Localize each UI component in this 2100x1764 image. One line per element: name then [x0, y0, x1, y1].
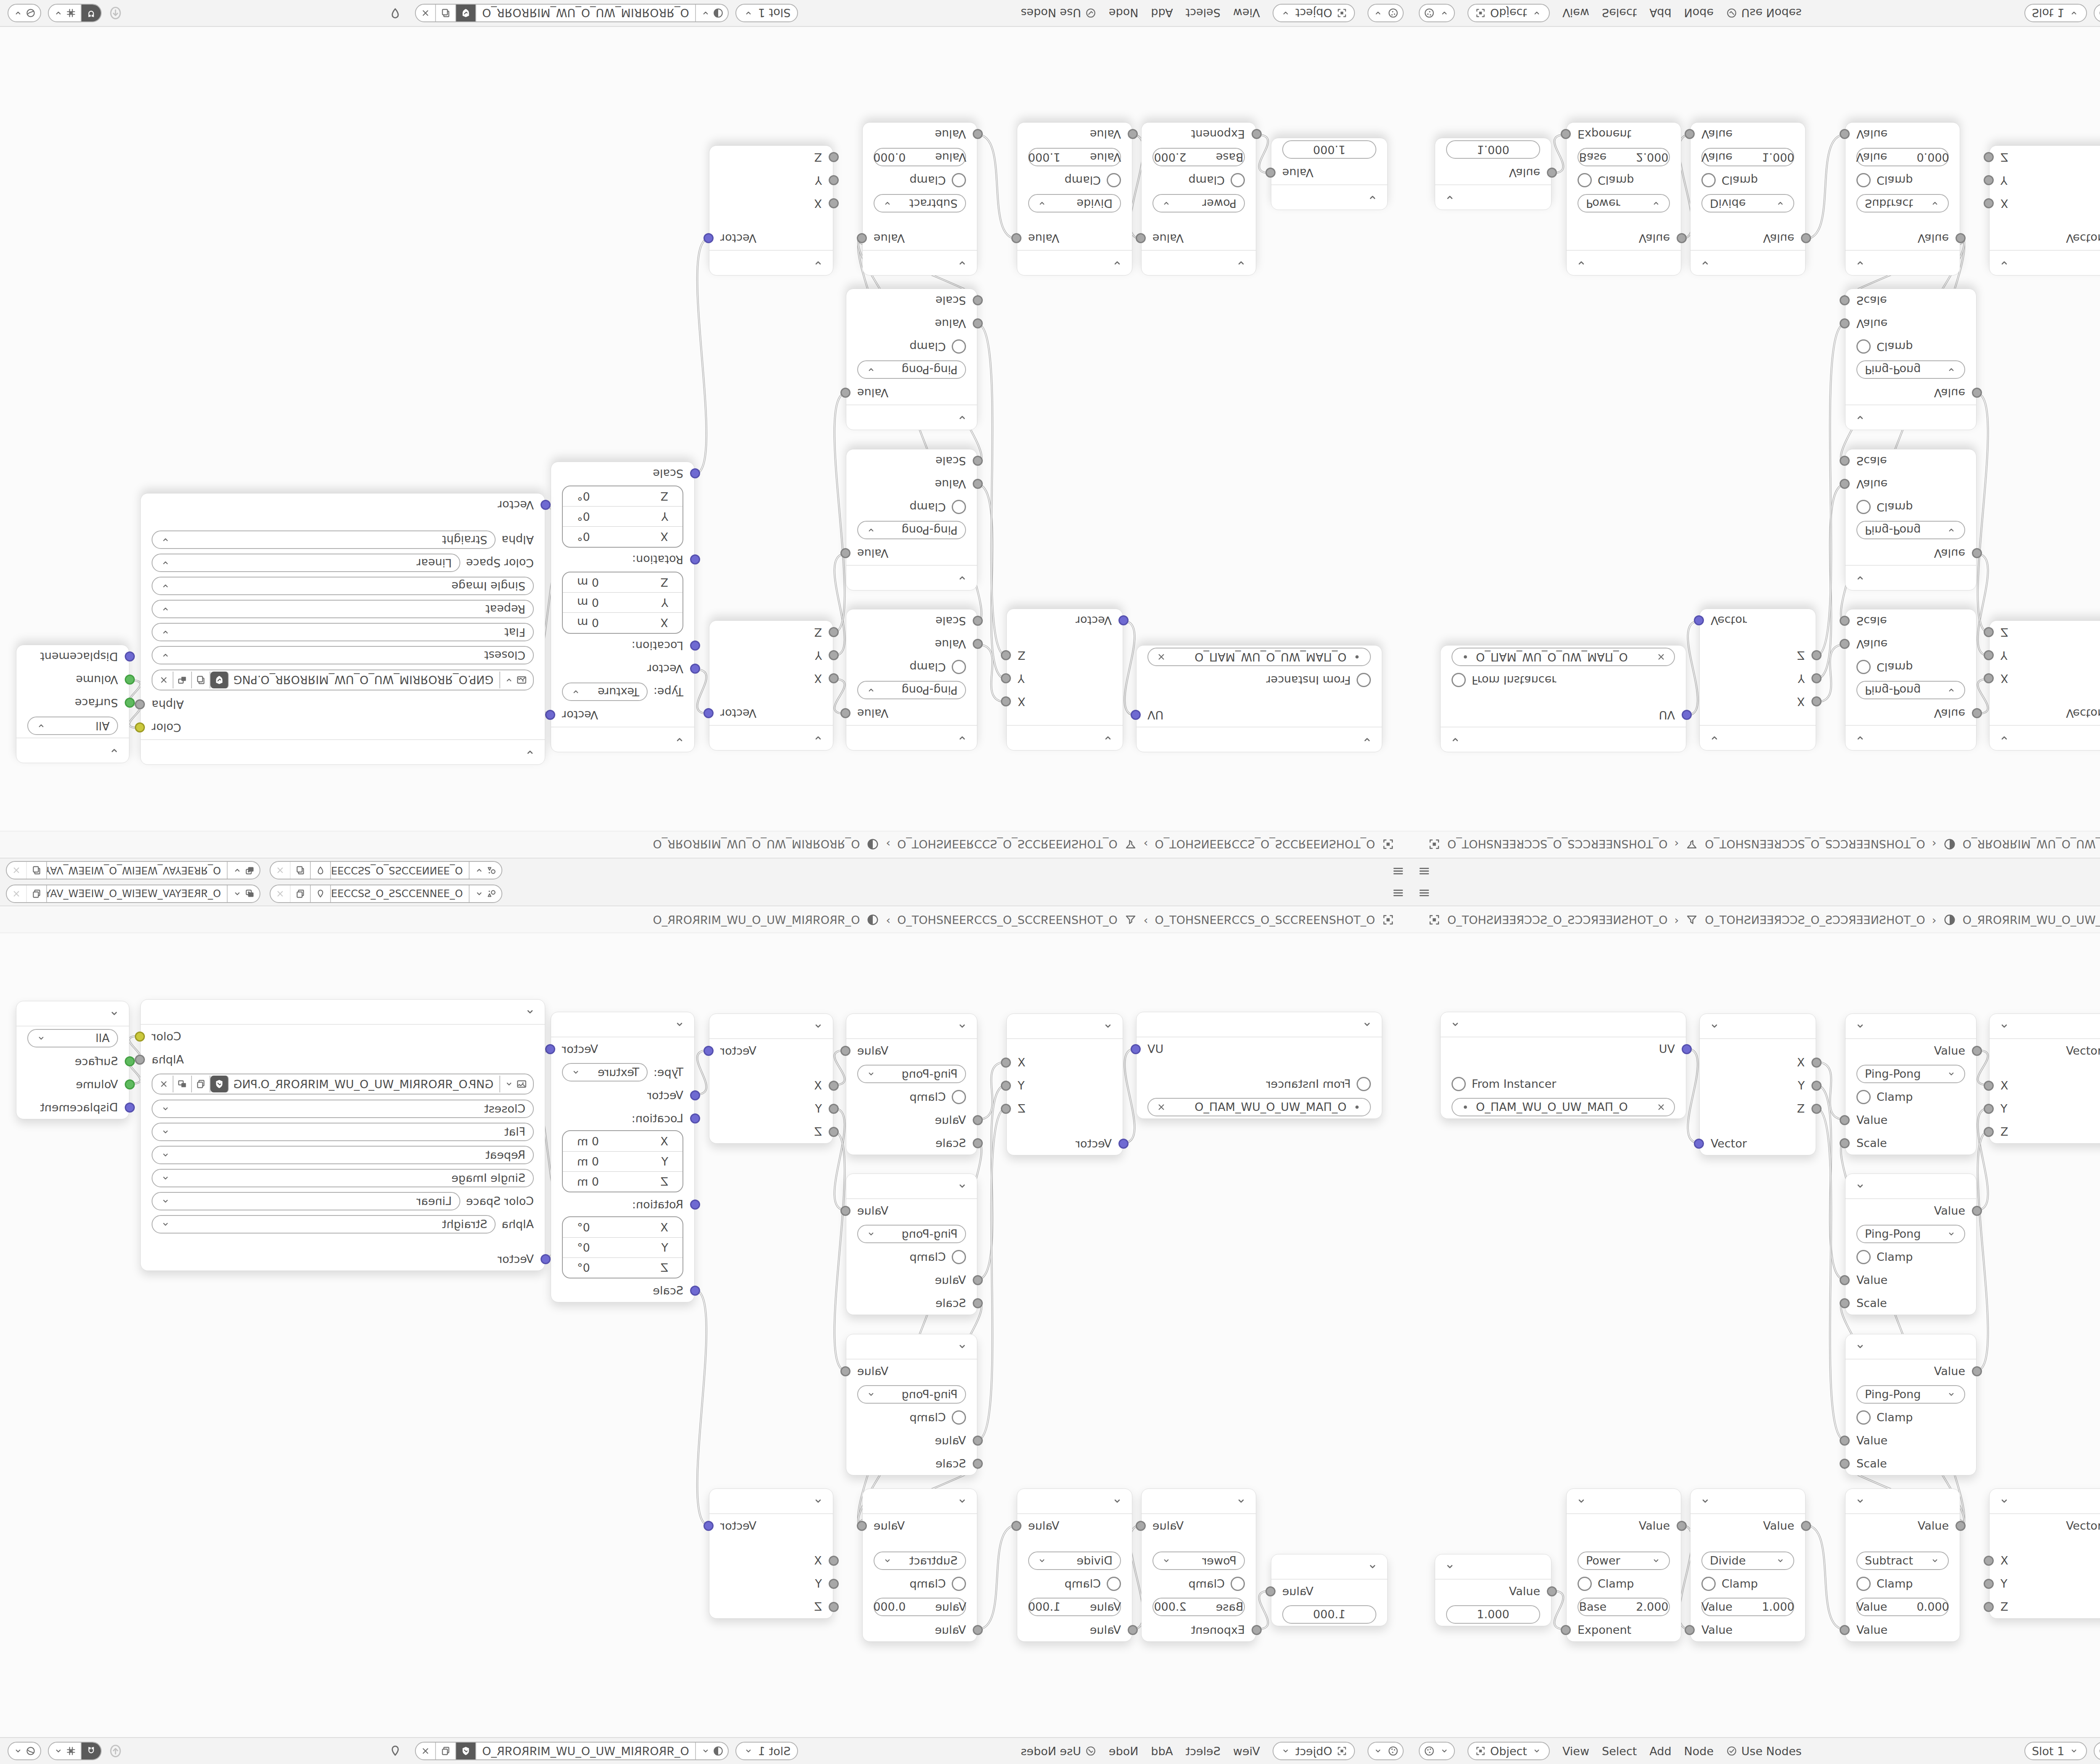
number-field[interactable]: Base2.000 — [1152, 1598, 1245, 1616]
view-layer-browse-button[interactable] — [228, 862, 260, 879]
node-material-output[interactable]: AllSurfaceVolumeDisplacement — [16, 1001, 129, 1119]
socket-value[interactable] — [1811, 1104, 1822, 1114]
copy-scene-button[interactable] — [291, 885, 311, 902]
editor-type-button[interactable] — [1368, 4, 1404, 22]
number-field[interactable]: Base2.000 — [1152, 148, 1245, 167]
number-field[interactable]: Value1.000 — [1028, 148, 1121, 167]
scene-browse-button[interactable] — [470, 885, 501, 902]
dropdown[interactable]: Power — [1152, 194, 1245, 213]
socket-value[interactable] — [1685, 1625, 1695, 1635]
dropdown[interactable]: Power — [1152, 1551, 1245, 1570]
node-collapse-header[interactable] — [846, 1014, 977, 1039]
socket-value[interactable] — [1011, 234, 1021, 244]
socket-value[interactable] — [1840, 639, 1850, 649]
number-field[interactable]: Value1.000 — [1028, 1598, 1121, 1616]
node-math-power[interactable]: ValuePowerClampBase2.000Exponent — [1566, 122, 1681, 276]
node-value[interactable]: Value1.000 — [1271, 138, 1388, 210]
socket-value[interactable] — [1984, 1602, 1994, 1612]
dropdown[interactable]: Linear — [152, 1192, 460, 1210]
socket-vector[interactable] — [1694, 616, 1704, 626]
slot-dropdown[interactable]: Slot 1 — [735, 1742, 798, 1760]
vector-component-field[interactable]: X0 m — [563, 613, 682, 633]
node-value[interactable]: Value1.000 — [1435, 138, 1551, 210]
snap-mode-dropdown[interactable] — [49, 5, 81, 21]
socket-value[interactable] — [829, 651, 839, 661]
node-image-texture[interactable]: ColorAlphaGИP.O_ЯROЯRIM_WU_O_UW_MIЯROЯR_… — [140, 999, 545, 1271]
new-copy-button[interactable] — [436, 1743, 456, 1759]
use-nodes-toggle[interactable]: Use Nodes — [1726, 1745, 1802, 1758]
number-field[interactable]: Value1.000 — [1701, 1598, 1794, 1616]
dropdown[interactable]: Linear — [152, 554, 460, 572]
socket-vector[interactable] — [1682, 710, 1692, 720]
socket-value[interactable] — [1265, 168, 1276, 178]
socket-value[interactable] — [840, 1046, 850, 1056]
checkbox[interactable] — [952, 340, 966, 354]
breadcrumb-item-image[interactable]: O_ЯROЯRIM_WU_O_UW_MIЯROЯR_O — [1963, 838, 2100, 851]
node-collapse-header[interactable] — [709, 725, 833, 750]
node-mapping[interactable]: VectorType:TextureVectorLocation:X0 mY0 … — [551, 1012, 695, 1302]
unlink-scene-button[interactable] — [270, 885, 291, 902]
socket-vector[interactable] — [1118, 616, 1129, 626]
dropdown[interactable]: Straight — [152, 1215, 496, 1234]
socket-value[interactable] — [857, 234, 867, 244]
socket-value[interactable] — [973, 639, 983, 649]
dropdown[interactable]: Single Image — [152, 577, 534, 596]
socket-vector[interactable] — [690, 555, 700, 565]
socket-value[interactable] — [1984, 1556, 1994, 1566]
node-collapse-header[interactable] — [709, 250, 833, 275]
node-separate-xyz[interactable]: XYZVector — [1699, 1013, 1816, 1155]
node-collapse-header[interactable] — [16, 1001, 129, 1026]
image-datablock-field[interactable]: GИP.O_ЯROЯRIM_WU_O_UW_MIЯROЯR_O.PNG — [152, 669, 534, 690]
snap-mode-dropdown[interactable] — [49, 1743, 81, 1759]
checkbox[interactable] — [1107, 173, 1121, 188]
vector-component-field[interactable]: Y0 m — [563, 1151, 682, 1171]
menu-node[interactable]: Node — [1109, 7, 1138, 20]
dropdown[interactable]: Ping-Pong — [1856, 681, 1965, 700]
shader-type-dropdown[interactable]: Object — [1467, 1742, 1550, 1760]
node-math-power[interactable]: ValuePowerClampBase2.000Exponent — [1566, 1488, 1681, 1642]
socket-value[interactable] — [1001, 697, 1011, 707]
vector-value-table[interactable]: X0°Y0°Z0° — [562, 486, 683, 548]
node-collapse-header[interactable] — [551, 727, 694, 752]
collapsed-menus-button[interactable] — [1391, 886, 1405, 902]
socket-value[interactable] — [1677, 1521, 1687, 1531]
copy-view-layer-button[interactable] — [27, 862, 47, 879]
overlap-arrow-icon[interactable] — [108, 6, 123, 20]
socket-value[interactable] — [840, 388, 850, 398]
socket-value[interactable] — [1001, 1081, 1011, 1091]
node-math-ping-pong-1[interactable]: ValuePing-PongClampValueScale — [1845, 1013, 1977, 1155]
collapsed-menus-button[interactable] — [1417, 886, 1431, 902]
node-collapse-header[interactable] — [1845, 1014, 1976, 1039]
checkbox[interactable] — [1856, 1410, 1871, 1425]
socket-value[interactable] — [829, 199, 839, 209]
node-collapse-header[interactable] — [1845, 565, 1976, 590]
dropdown[interactable]: Divide — [1028, 1551, 1121, 1570]
socket-value[interactable] — [1811, 1081, 1822, 1091]
socket-value[interactable] — [1972, 1046, 1982, 1056]
dropdown[interactable]: Ping-Pong — [857, 1065, 966, 1083]
menu-view[interactable]: View — [1233, 7, 1260, 20]
socket-value[interactable] — [973, 1138, 983, 1148]
dropdown[interactable]: Power — [1578, 194, 1670, 213]
checkbox[interactable] — [1452, 1077, 1466, 1091]
socket-value[interactable] — [1547, 1586, 1557, 1596]
node-math-power[interactable]: ValuePowerClampBase2.000Exponent — [1141, 122, 1256, 276]
node-collapse-header[interactable] — [1845, 1489, 1960, 1514]
node-math-ping-pong-1[interactable]: ValuePing-PongClampValueScale — [846, 609, 977, 751]
number-field[interactable]: 1.000 — [1282, 1605, 1376, 1624]
menu-view[interactable]: View — [1562, 1745, 1589, 1758]
socket-value[interactable] — [973, 1625, 983, 1635]
vector-value-table[interactable]: X0 mY0 mZ0 m — [562, 1130, 683, 1192]
socket-value[interactable] — [973, 1298, 983, 1308]
dropdown[interactable]: Subtract — [874, 1551, 966, 1570]
socket-value[interactable] — [1136, 234, 1146, 244]
dropdown[interactable]: Ping-Pong — [1856, 1065, 1965, 1083]
socket-value[interactable] — [829, 1556, 839, 1566]
vector-value-table[interactable]: X0 mY0 mZ0 m — [562, 572, 683, 634]
node-collapse-header[interactable] — [1845, 404, 1976, 430]
breadcrumb-item-scene[interactable]: O_TOHƧИƎƎЯƆƆƧ_O_ƧƆƆЯƎƎИƧHOT_O — [1155, 838, 1375, 851]
dropdown[interactable]: Ping-Pong — [857, 1385, 966, 1404]
socket-value[interactable] — [1840, 1115, 1850, 1125]
pin-icon[interactable] — [388, 6, 402, 20]
socket-shader[interactable] — [125, 698, 135, 708]
checkbox[interactable] — [1856, 1577, 1871, 1591]
browse-image-button[interactable] — [2095, 1743, 2100, 1759]
socket-value[interactable] — [1972, 1206, 1982, 1216]
socket-value[interactable] — [1840, 456, 1850, 466]
node-collapse-header[interactable] — [1137, 727, 1382, 752]
socket-value[interactable] — [1561, 1625, 1571, 1635]
socket-vector[interactable] — [690, 641, 700, 651]
node-collapse-header[interactable] — [1990, 1014, 2100, 1039]
view-layer-name-field[interactable]: O_ЯRƎEYAV_WƎEIW_O_WIƎEW_VAYƎEЯR_O — [47, 885, 228, 902]
breadcrumb-item-image[interactable]: O_ЯROЯRIM_WU_O_UW_MIЯROЯR_O — [653, 913, 860, 927]
menu-node[interactable]: Node — [1684, 1745, 1714, 1758]
dropdown[interactable]: Ping-Pong — [1856, 361, 1965, 379]
id-select-field[interactable]: O_ПAM_WU_O_UW_MAП_O — [1452, 648, 1675, 667]
node-collapse-header[interactable] — [1271, 184, 1387, 210]
socket-value[interactable] — [1677, 234, 1687, 244]
node-collapse-header[interactable] — [551, 1012, 694, 1037]
node-material-output[interactable]: AllSurfaceVolumeDisplacement — [16, 645, 129, 763]
socket-value[interactable] — [1984, 1104, 1994, 1114]
menu-node[interactable]: Node — [1109, 1745, 1138, 1758]
node-collapse-header[interactable] — [141, 1000, 545, 1025]
shader-type-dropdown[interactable]: Object — [1273, 4, 1355, 22]
socket-vector[interactable] — [1694, 1139, 1704, 1149]
browse-image-button[interactable] — [2095, 5, 2100, 21]
number-field[interactable]: Value0.000 — [1856, 148, 1949, 167]
socket-value[interactable] — [829, 1579, 839, 1589]
node-collapse-header[interactable] — [1441, 1012, 1686, 1037]
node-editor-canvas[interactable]: UVFrom InstancerO_ПAM_WU_O_UW_MAП_OXYZVe… — [1411, 0, 2100, 882]
breadcrumb-item-view-layer[interactable]: O_TOHƧИƎƎЯƆƆƧ_O_ƧƆƆЯƎƎИƧHOT_O — [1705, 913, 1925, 927]
socket-value[interactable] — [840, 1366, 850, 1376]
menu-select[interactable]: Select — [1186, 1745, 1221, 1758]
socket-vector[interactable] — [1131, 1044, 1141, 1054]
node-editor-canvas[interactable]: UVFrom InstancerO_ПAM_WU_O_UW_MAП_OXYZVe… — [0, 0, 1411, 882]
socket-value[interactable] — [1128, 129, 1138, 139]
number-field[interactable]: Value0.000 — [1856, 1598, 1949, 1616]
socket-value[interactable] — [1840, 1275, 1850, 1285]
checkbox[interactable] — [952, 1410, 966, 1425]
socket-value[interactable] — [1956, 1521, 1966, 1531]
node-collapse-header[interactable] — [1990, 725, 2100, 750]
checkbox[interactable] — [1701, 173, 1716, 188]
scene-name-field[interactable]: O_ƎƎИИƎƆƆƧS_O_SƧƆƆƎƎИ… — [331, 862, 470, 879]
node-collapse-header[interactable] — [16, 738, 129, 763]
node-collapse-header[interactable] — [1990, 1489, 2100, 1514]
socket-value[interactable] — [1840, 129, 1850, 139]
node-combine-xyz-2[interactable]: VectorXYZ — [709, 1488, 833, 1619]
socket-value[interactable] — [1561, 129, 1571, 139]
node-collapse-header[interactable] — [846, 725, 977, 750]
node-collapse-header[interactable] — [1007, 1014, 1123, 1039]
socket-value[interactable] — [829, 1602, 839, 1612]
socket-vector[interactable] — [703, 1521, 714, 1531]
node-combine-xyz-1[interactable]: VectorXYZ — [1989, 620, 2100, 751]
checkbox[interactable] — [952, 1250, 966, 1264]
socket-value[interactable] — [1956, 234, 1966, 244]
socket-shader[interactable] — [125, 1079, 135, 1089]
socket-value[interactable] — [1801, 234, 1811, 244]
node-collapse-header[interactable] — [1567, 250, 1681, 275]
socket-value[interactable] — [1840, 1298, 1850, 1308]
socket-value[interactable] — [1001, 1058, 1011, 1068]
socket-value[interactable] — [1972, 709, 1982, 719]
editor-type-button[interactable] — [1419, 1742, 1455, 1760]
checkbox[interactable] — [1578, 1577, 1592, 1591]
overlap-arrow-icon[interactable] — [108, 1744, 123, 1758]
socket-shader[interactable] — [125, 675, 135, 685]
node-collapse-header[interactable] — [1137, 1012, 1382, 1037]
socket-value[interactable] — [1811, 697, 1822, 707]
node-collapse-header[interactable] — [1845, 725, 1976, 750]
socket-vector[interactable] — [125, 1102, 135, 1113]
checkbox[interactable] — [1856, 500, 1871, 514]
datablock-name-field[interactable]: O_ЯROЯRIM_WU_O_UW_MIЯROЯR_O — [476, 1743, 696, 1759]
menu-add[interactable]: Add — [1151, 7, 1173, 20]
node-math-subtract[interactable]: ValueSubtractClampValue0.000Value — [862, 122, 977, 276]
socket-value[interactable] — [973, 616, 983, 626]
socket-value[interactable] — [829, 627, 839, 638]
unlink-datablock-button[interactable] — [416, 1743, 436, 1759]
breadcrumb-item-image[interactable]: O_ЯROЯRIM_WU_O_UW_MIЯROЯR_O — [653, 838, 860, 851]
socket-shader[interactable] — [125, 1056, 135, 1066]
socket-value[interactable] — [1984, 152, 1994, 163]
vector-component-field[interactable]: X0 m — [563, 1131, 682, 1151]
socket-value[interactable] — [1840, 1625, 1850, 1635]
dropdown[interactable]: Closest — [152, 1100, 534, 1118]
node-uv-map[interactable]: UVFrom InstancerO_ПAM_WU_O_UW_MAП_O — [1440, 645, 1686, 752]
node-mapping[interactable]: VectorType:TextureVectorLocation:X0 mY0 … — [551, 462, 695, 752]
browse-image-button[interactable] — [696, 5, 728, 21]
breadcrumb-item-scene[interactable]: O_TOHƧИƎƎЯƆƆƧ_O_ƧƆƆЯƎƎИƧHOT_O — [1447, 913, 1668, 927]
dropdown[interactable]: All — [27, 1029, 118, 1047]
fake-user-button[interactable] — [456, 1743, 476, 1759]
checkbox[interactable] — [952, 660, 966, 675]
socket-value[interactable] — [973, 479, 983, 489]
node-separate-xyz[interactable]: XYZVector — [1006, 1013, 1123, 1155]
snap-toggle-button[interactable] — [81, 1743, 101, 1759]
checkbox[interactable] — [1357, 673, 1371, 688]
checkbox[interactable] — [1578, 173, 1592, 188]
dropdown[interactable]: Flat — [152, 623, 534, 642]
dropdown[interactable]: Ping-Pong — [857, 1225, 966, 1243]
node-math-subtract[interactable]: ValueSubtractClampValue0.000Value — [862, 1488, 977, 1642]
node-math-ping-pong-3[interactable]: ValuePing-PongClampValueScale — [846, 1334, 977, 1475]
socket-vector[interactable] — [125, 652, 135, 662]
socket-value[interactable] — [1128, 1625, 1138, 1635]
socket-value[interactable] — [829, 152, 839, 163]
vector-value-table[interactable]: X0°Y0°Z0° — [562, 1216, 683, 1278]
unlink-image-button[interactable] — [155, 1076, 173, 1092]
menu-select[interactable]: Select — [1186, 7, 1221, 20]
dropdown[interactable]: Ping-Pong — [1856, 1225, 1965, 1243]
socket-vector[interactable] — [1118, 1139, 1129, 1149]
socket-value[interactable] — [1984, 651, 1994, 661]
socket-value[interactable] — [1840, 479, 1850, 489]
node-math-ping-pong-3[interactable]: ValuePing-PongClampValueScale — [1845, 1334, 1977, 1475]
vector-component-field[interactable]: X0° — [563, 1217, 682, 1237]
proportional-edit-dropdown[interactable] — [8, 5, 40, 21]
breadcrumb-item-image[interactable]: O_ЯROЯRIM_WU_O_UW_MIЯROЯR_O — [1963, 913, 2100, 927]
fake-user-button[interactable] — [456, 5, 476, 21]
number-field[interactable]: Value0.000 — [874, 148, 966, 167]
dropdown[interactable]: Subtract — [1856, 194, 1949, 213]
node-combine-xyz-1[interactable]: VectorXYZ — [709, 620, 833, 751]
shader-type-dropdown[interactable]: Object — [1467, 4, 1550, 22]
node-separate-xyz[interactable]: XYZVector — [1699, 609, 1816, 751]
vector-component-field[interactable]: Y0 m — [563, 593, 682, 613]
node-math-divide[interactable]: ValueDivideClampValue1.000Value — [1690, 122, 1806, 276]
copy-scene-button[interactable] — [291, 862, 311, 879]
socket-value[interactable] — [973, 1459, 983, 1469]
node-combine-xyz-1[interactable]: VectorXYZ — [1989, 1013, 2100, 1144]
socket-value[interactable] — [1840, 1436, 1850, 1446]
node-collapse-header[interactable] — [1845, 1174, 1976, 1199]
number-field[interactable]: Value1.000 — [1701, 148, 1794, 167]
collapsed-menus-button[interactable] — [1417, 862, 1431, 878]
number-field[interactable]: Base2.000 — [1578, 1598, 1670, 1616]
socket-vector[interactable] — [545, 1044, 555, 1054]
dropdown[interactable]: Flat — [152, 1123, 534, 1141]
vector-component-field[interactable]: Z0 m — [563, 572, 682, 593]
fake-user-button[interactable] — [210, 1076, 229, 1092]
node-collapse-header[interactable] — [1435, 184, 1551, 210]
menu-add[interactable]: Add — [1649, 7, 1671, 20]
socket-value[interactable] — [1840, 319, 1850, 329]
socket-vector[interactable] — [690, 1113, 700, 1123]
dropdown[interactable]: Single Image — [152, 1169, 534, 1187]
unlink-image-button[interactable] — [155, 672, 173, 688]
socket-value[interactable] — [1001, 674, 1011, 684]
slot-dropdown[interactable]: Slot 1 — [735, 4, 798, 22]
vector-component-field[interactable]: Z0° — [563, 1257, 682, 1278]
vector-component-field[interactable]: Z0 m — [563, 1171, 682, 1192]
checkbox[interactable] — [1856, 340, 1871, 354]
dropdown[interactable]: Texture — [562, 1063, 648, 1081]
pack-image-button[interactable] — [173, 672, 192, 688]
copy-image-button[interactable] — [192, 1076, 210, 1092]
node-collapse-header[interactable] — [1007, 725, 1123, 750]
socket-value[interactable] — [1984, 627, 1994, 638]
dropdown[interactable]: Straight — [152, 531, 496, 549]
socket-vector[interactable] — [690, 1200, 700, 1210]
number-field[interactable]: Value0.000 — [874, 1598, 966, 1616]
use-nodes-toggle[interactable]: Use Nodes — [1726, 7, 1802, 20]
socket-value[interactable] — [1011, 1521, 1021, 1531]
node-math-ping-pong-2[interactable]: ValuePing-PongClampValueScale — [1845, 449, 1977, 591]
fake-user-button[interactable] — [210, 672, 229, 688]
use-nodes-toggle[interactable]: Use Nodes — [1021, 7, 1096, 20]
id-select-field[interactable]: O_ПAM_WU_O_UW_MAП_O — [1147, 1098, 1371, 1116]
socket-value[interactable] — [1811, 674, 1822, 684]
socket-vector[interactable] — [1131, 710, 1141, 720]
checkbox[interactable] — [1231, 1577, 1245, 1591]
socket-value[interactable] — [829, 674, 839, 684]
number-field[interactable]: 1.000 — [1282, 141, 1376, 159]
copy-view-layer-button[interactable] — [27, 885, 47, 902]
dropdown[interactable]: Repeat — [152, 1146, 534, 1164]
socket-vector[interactable] — [703, 234, 714, 244]
node-uv-map[interactable]: UVFrom InstancerO_ПAM_WU_O_UW_MAП_O — [1136, 1012, 1382, 1119]
pack-image-button[interactable] — [173, 1076, 192, 1092]
node-collapse-header[interactable] — [846, 1334, 977, 1360]
checkbox[interactable] — [1231, 173, 1245, 188]
node-editor-canvas[interactable]: UVFrom InstancerO_ПAM_WU_O_UW_MAП_OXYZVe… — [1411, 882, 2100, 1764]
menu-add[interactable]: Add — [1649, 1745, 1671, 1758]
node-math-divide[interactable]: ValueDivideClampValue1.000Value — [1690, 1488, 1806, 1642]
socket-value[interactable] — [1547, 168, 1557, 178]
snap-toggle-button[interactable] — [81, 5, 101, 21]
node-collapse-header[interactable] — [1567, 1489, 1681, 1514]
node-collapse-header[interactable] — [1690, 1489, 1805, 1514]
socket-value[interactable] — [1984, 674, 1994, 684]
dropdown[interactable]: Divide — [1701, 1551, 1794, 1570]
node-collapse-header[interactable] — [863, 1489, 977, 1514]
number-field[interactable]: 1.000 — [1446, 1605, 1540, 1624]
node-collapse-header[interactable] — [863, 250, 977, 275]
dropdown[interactable]: Ping-Pong — [857, 521, 966, 540]
socket-value[interactable] — [829, 1081, 839, 1091]
menu-view[interactable]: View — [1233, 1745, 1260, 1758]
socket-vector[interactable] — [703, 709, 714, 719]
node-editor-canvas[interactable]: UVFrom InstancerO_ПAM_WU_O_UW_MAП_OXYZVe… — [0, 882, 1411, 1764]
pin-scene-button[interactable] — [311, 862, 331, 879]
node-math-ping-pong-1[interactable]: ValuePing-PongClampValueScale — [846, 1013, 977, 1155]
socket-value[interactable] — [973, 296, 983, 306]
slot-dropdown[interactable]: Slot 1 — [2024, 4, 2087, 22]
socket-value[interactable] — [829, 1104, 839, 1114]
dropdown[interactable]: Subtract — [874, 194, 966, 213]
number-field[interactable]: 1.000 — [1446, 141, 1540, 159]
dropdown[interactable]: Divide — [1701, 194, 1794, 213]
socket-vector[interactable] — [541, 1254, 551, 1264]
node-math-power[interactable]: ValuePowerClampBase2.000Exponent — [1141, 1488, 1256, 1642]
socket-value[interactable] — [1840, 1138, 1850, 1148]
dropdown[interactable]: Power — [1578, 1551, 1670, 1570]
node-collapse-header[interactable] — [846, 1174, 977, 1199]
dropdown[interactable]: Closest — [152, 646, 534, 665]
socket-value[interactable] — [1001, 651, 1011, 661]
socket-value[interactable] — [1252, 1625, 1262, 1635]
socket-vector[interactable] — [1682, 1044, 1692, 1054]
